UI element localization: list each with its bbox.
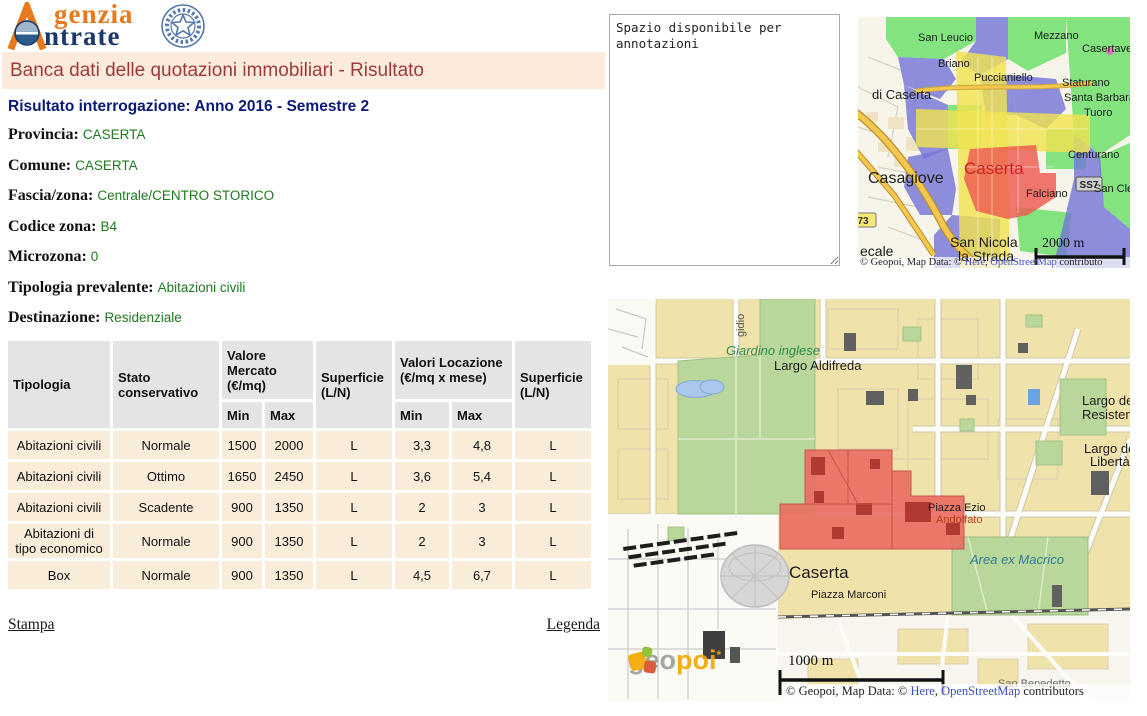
- cell-vm-min: 1650: [222, 462, 262, 490]
- field-destinazione: Destinazione:Residenziale: [8, 309, 598, 327]
- road-badge-73: 73: [858, 216, 869, 227]
- cell-tipologia: Abitazioni civili: [8, 431, 110, 459]
- cell-superficie-1: L: [316, 462, 392, 490]
- scale-label: 2000 m: [1042, 236, 1084, 252]
- field-value: Abitazioni civili: [158, 280, 246, 295]
- map-label-giardino-inglese: Giardino inglese: [726, 345, 820, 357]
- cell-vl-min: 3,3: [395, 431, 449, 459]
- map-label-caserta: Caserta: [964, 163, 1024, 175]
- map-attribution: © Geopoi, Map Data: © Here, OpenStreetMa…: [784, 684, 1088, 700]
- attribution-text: contributors: [1020, 684, 1084, 698]
- legenda-link[interactable]: Legenda: [547, 616, 600, 634]
- cell-vl-max: 4,8: [452, 431, 512, 459]
- agenzia-entrate-mark-icon: [8, 2, 48, 50]
- col-header-stato: Stato conservativo: [113, 341, 219, 428]
- col-header-min-2: Min: [395, 402, 449, 428]
- col-header-max-2: Max: [452, 402, 512, 428]
- cell-tipologia: Abitazioni civili: [8, 493, 110, 521]
- field-value: CASERTA: [75, 158, 138, 173]
- result-heading: Risultato interrogazione: Anno 2016 - Se…: [8, 98, 369, 116]
- map-label: Libertà: [1090, 456, 1130, 468]
- cell-superficie-1: L: [316, 561, 392, 589]
- col-header-valori-locazione: Valori Locazione (€/mq x mese): [395, 341, 512, 399]
- footer-links: Stampa Legenda: [8, 616, 600, 634]
- map-label-area-ex-macrico: Area ex Macrico: [970, 554, 1064, 566]
- table-row: Abitazioni di tipo economicoNormale90013…: [8, 524, 591, 558]
- map-label: Centurano: [1068, 149, 1119, 161]
- map-label: Santa Barbara: [1064, 92, 1130, 104]
- here-link[interactable]: Here: [965, 257, 985, 268]
- table-row: BoxNormale9001350L4,56,7L: [8, 561, 591, 589]
- cell-vl-min: 3,6: [395, 462, 449, 490]
- map-label: Casertavecc: [1082, 43, 1130, 55]
- cell-stato: Normale: [113, 524, 219, 558]
- table-row: Abitazioni civiliNormale15002000L3,34,8L: [8, 431, 591, 459]
- detail-map-graphic: [608, 299, 1130, 701]
- geopoi-watermark: geopoi*: [628, 645, 721, 676]
- query-result-fields: Provincia:CASERTA Comune:CASERTA Fascia/…: [8, 126, 598, 340]
- watermark-mark: *: [717, 648, 722, 662]
- field-label: Microzona:: [8, 248, 87, 265]
- zone-detail-map[interactable]: gidio Giardino inglese Largo Aldifreda L…: [608, 299, 1130, 701]
- col-header-superficie-1: Superficie (L/N): [316, 341, 392, 428]
- cell-tipologia: Abitazioni civili: [8, 462, 110, 490]
- map-label-caserta: Caserta: [789, 567, 849, 579]
- table-row: Abitazioni civiliOttimo16502450L3,65,4L: [8, 462, 591, 490]
- cell-vl-min: 4,5: [395, 561, 449, 589]
- cell-vm-max: 2450: [265, 462, 313, 490]
- table-row: Abitazioni civiliScadente9001350L23L: [8, 493, 591, 521]
- scale-label: 1000 m: [788, 653, 833, 670]
- cell-stato: Normale: [113, 431, 219, 459]
- cell-vm-min: 1500: [222, 431, 262, 459]
- cell-tipologia: Abitazioni di tipo economico: [8, 524, 110, 558]
- col-header-superficie-2: Superficie (L/N): [515, 341, 591, 428]
- map-label: Largo Aldifreda: [774, 360, 861, 372]
- cell-superficie-2: L: [515, 561, 591, 589]
- cell-vm-min: 900: [222, 524, 262, 558]
- page-title: Banca dati delle quotazioni immobiliari …: [2, 52, 605, 89]
- attribution-text: © Geopoi, Map Data: ©: [786, 684, 911, 698]
- field-comune: Comune:CASERTA: [8, 157, 598, 175]
- cell-vm-max: 1350: [265, 524, 313, 558]
- cell-vl-min: 2: [395, 493, 449, 521]
- map-label: San Cleme: [1094, 183, 1130, 195]
- map-label: ecale: [860, 245, 893, 257]
- cell-stato: Ottimo: [113, 462, 219, 490]
- cell-vm-max: 2000: [265, 431, 313, 459]
- field-fascia-zona: Fascia/zona:Centrale/CENTRO STORICO: [8, 187, 598, 205]
- annotations-textarea[interactable]: Spazio disponibile per annotazioni: [609, 14, 840, 266]
- col-header-max-1: Max: [265, 402, 313, 428]
- map-label: Briano: [938, 58, 970, 70]
- stampa-link[interactable]: Stampa: [8, 616, 55, 633]
- field-label: Destinazione:: [8, 309, 100, 326]
- field-provincia: Provincia:CASERTA: [8, 126, 598, 144]
- cell-vm-max: 1350: [265, 493, 313, 521]
- map-label: Staturano: [1062, 77, 1110, 89]
- cell-stato: Scadente: [113, 493, 219, 521]
- col-header-min-1: Min: [222, 402, 262, 428]
- field-codice-zona: Codice zona:B4: [8, 218, 598, 236]
- field-label: Comune:: [8, 157, 71, 174]
- field-value: 0: [91, 249, 99, 264]
- cell-superficie-1: L: [316, 524, 392, 558]
- field-label: Provincia:: [8, 126, 79, 143]
- map-label: Andolfato: [936, 514, 982, 526]
- field-label: Codice zona:: [8, 218, 96, 235]
- cell-vl-max: 5,4: [452, 462, 512, 490]
- cell-vl-max: 6,7: [452, 561, 512, 589]
- openstreetmap-link[interactable]: OpenStreetMap: [941, 684, 1020, 698]
- agenzia-entrate-logo: genzia ntrate: [8, 2, 208, 50]
- map-label-street: gidio: [735, 314, 747, 337]
- field-label: Fascia/zona:: [8, 187, 93, 204]
- map-label: Tuoro: [1084, 107, 1112, 119]
- openstreetmap-link[interactable]: OpenStreetMap: [990, 257, 1056, 268]
- field-value: Residenziale: [104, 310, 181, 325]
- cell-superficie-2: L: [515, 524, 591, 558]
- map-label: San Leucio: [918, 32, 973, 44]
- cell-vl-max: 3: [452, 524, 512, 558]
- field-label: Tipologia prevalente:: [8, 279, 154, 296]
- cell-vl-min: 2: [395, 524, 449, 558]
- cell-vm-min: 900: [222, 561, 262, 589]
- field-value: B4: [100, 219, 117, 234]
- cell-stato: Normale: [113, 561, 219, 589]
- cell-superficie-2: L: [515, 493, 591, 521]
- map-label: San Nicola: [950, 236, 1018, 248]
- map-label: Piazza Ezio: [928, 502, 985, 514]
- map-label: Puccianiello: [974, 72, 1033, 84]
- map-label: Resistenz: [1082, 409, 1130, 421]
- map-label: Piazza Marconi: [811, 589, 886, 601]
- quotazioni-table: Tipologia Stato conservativo Valore Merc…: [5, 338, 594, 592]
- cell-vm-min: 900: [222, 493, 262, 521]
- map-label: Largo dell: [1082, 395, 1130, 407]
- here-link[interactable]: Here: [911, 684, 935, 698]
- field-tipologia-prevalente: Tipologia prevalente:Abitazioni civili: [8, 279, 598, 297]
- col-header-valore-mercato: Valore Mercato (€/mq): [222, 341, 313, 399]
- map-label: Mezzano: [1034, 30, 1079, 42]
- map-label: di Caserta: [872, 89, 931, 101]
- cell-superficie-1: L: [316, 431, 392, 459]
- col-header-tipologia: Tipologia: [8, 341, 110, 428]
- map-label: Falciano: [1026, 188, 1068, 200]
- field-value: CASERTA: [83, 127, 146, 142]
- attribution-text: © Geopoi, Map Data: ©: [860, 257, 965, 268]
- map-label: Casagiove: [868, 173, 944, 185]
- logo-wordmark: genzia ntrate: [44, 3, 134, 47]
- geopoi-icon: [628, 645, 658, 677]
- cell-superficie-1: L: [316, 493, 392, 521]
- cell-superficie-2: L: [515, 431, 591, 459]
- field-microzona: Microzona:0: [8, 248, 598, 266]
- watermark-poi: poi: [676, 645, 717, 675]
- cell-vl-max: 3: [452, 493, 512, 521]
- attribution-text: contributo: [1057, 257, 1103, 268]
- logo-line2: ntrate: [44, 25, 134, 47]
- cell-superficie-2: L: [515, 462, 591, 490]
- map-attribution: © Geopoi, Map Data: © Here, OpenStreetMa…: [860, 257, 1103, 268]
- zone-overview-map[interactable]: SS7 73 San Leucio Mezzano Casertavecc Br…: [858, 17, 1130, 268]
- italian-republic-emblem-icon: [160, 2, 206, 50]
- cell-vm-max: 1350: [265, 561, 313, 589]
- field-value: Centrale/CENTRO STORICO: [97, 188, 274, 203]
- cell-tipologia: Box: [8, 561, 110, 589]
